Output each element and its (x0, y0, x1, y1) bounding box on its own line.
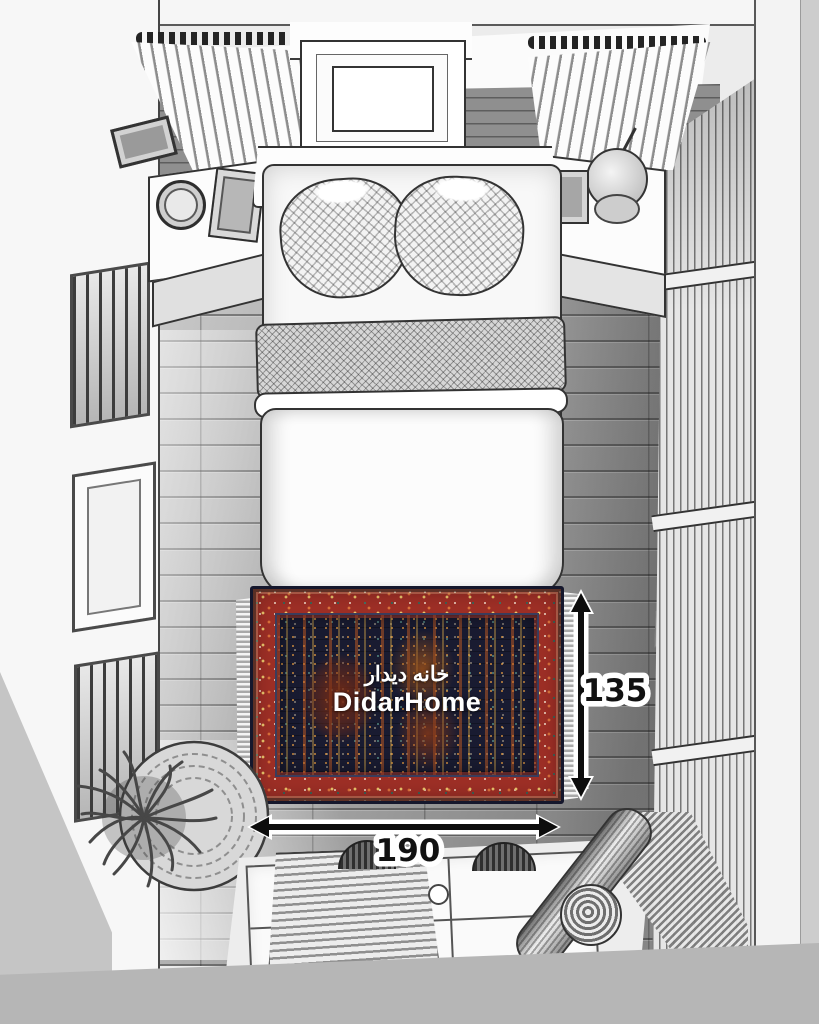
right-outer-wall (754, 0, 804, 1024)
left-wall-window-upper (70, 262, 150, 429)
rolled-rug-spiral-end (560, 884, 622, 946)
rug-watermark: خانه دیدار DidarHome (277, 663, 537, 718)
room-illustration: خانه دیدار DidarHome (0, 0, 819, 1024)
rug-fringe-right (562, 592, 580, 800)
rug-field: خانه دیدار DidarHome (275, 613, 539, 777)
duvet (260, 408, 564, 598)
lamp-base (594, 194, 640, 224)
skylight-glass (332, 66, 434, 132)
left-wall-panel (72, 461, 156, 632)
persian-rug: خانه دیدار DidarHome (250, 586, 564, 804)
alarm-clock (156, 180, 206, 230)
brand-name-english: DidarHome (277, 687, 537, 718)
brand-name-farsi: خانه دیدار (277, 663, 537, 687)
right-edge-strip (800, 0, 819, 1024)
door-handle (428, 884, 449, 905)
